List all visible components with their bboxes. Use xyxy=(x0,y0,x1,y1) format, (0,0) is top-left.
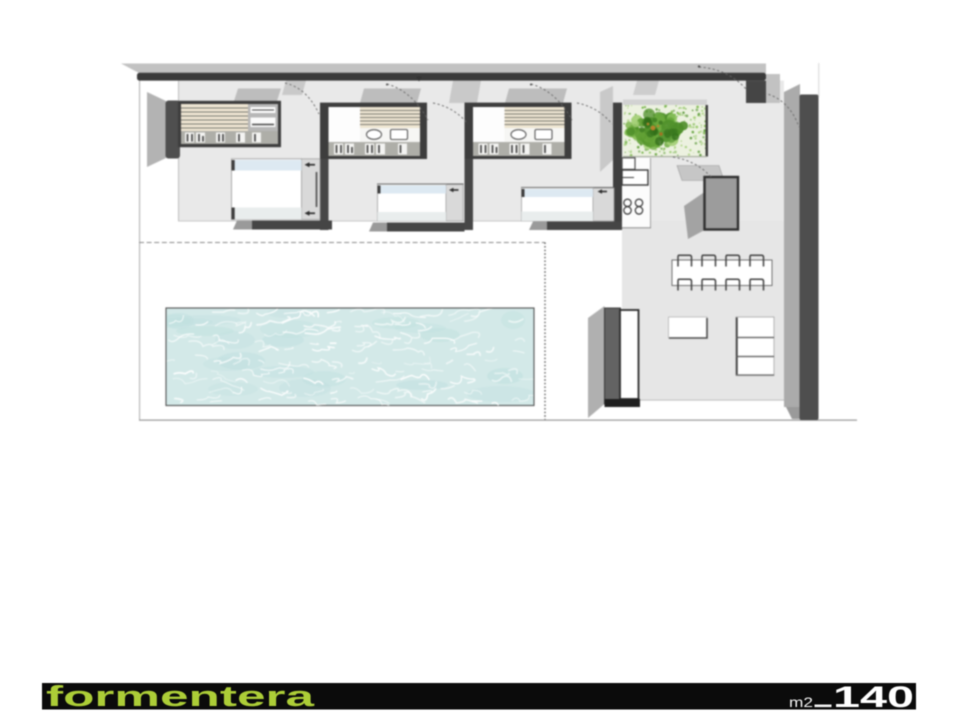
svg-text:m2: m2 xyxy=(789,694,813,710)
svg-text:140: 140 xyxy=(833,681,914,714)
svg-text:formentera: formentera xyxy=(46,681,316,713)
